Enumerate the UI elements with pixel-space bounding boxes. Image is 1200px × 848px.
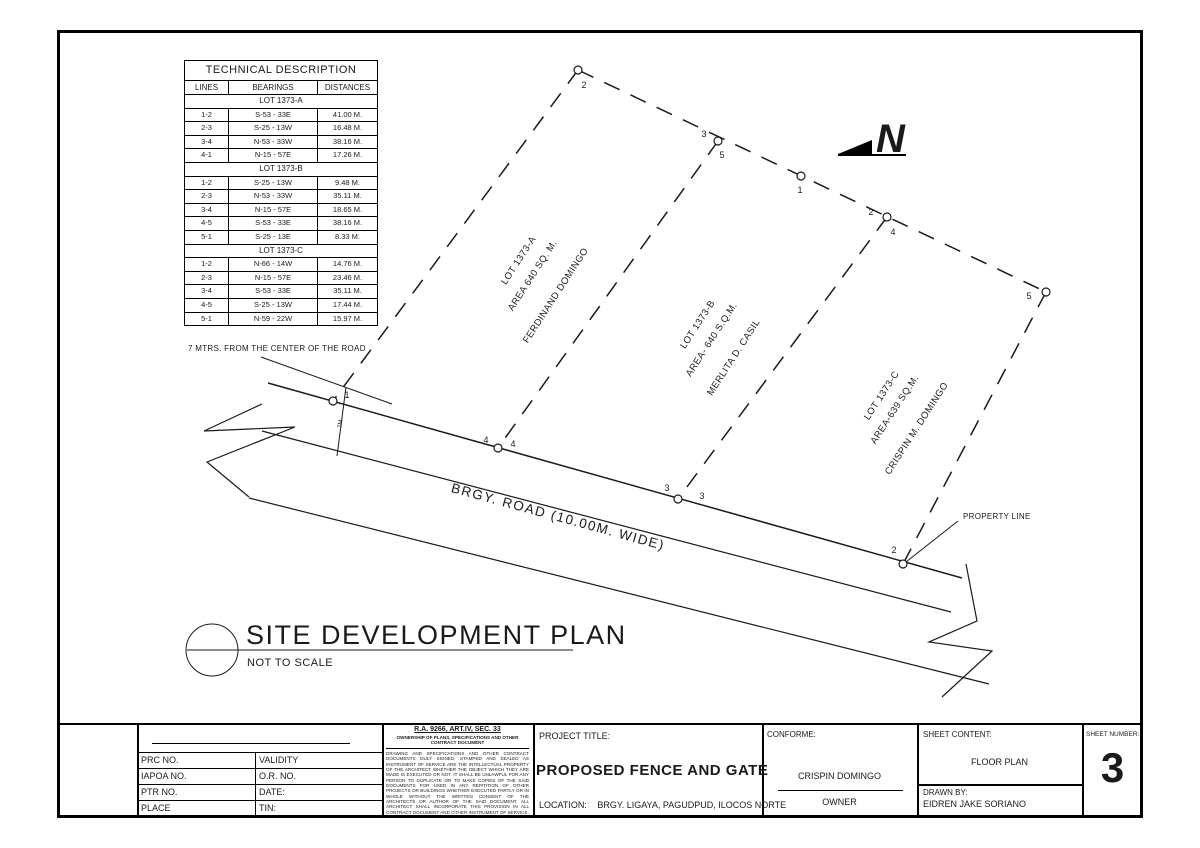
table-cell: 1-2	[185, 108, 229, 122]
sheet-number: 3	[1082, 744, 1143, 792]
point-label: 4	[483, 435, 488, 445]
road-break-left	[204, 404, 295, 497]
survey-point-labels: 2 3 5 1 2 4 5 1 4 4 3 3 2	[344, 80, 1031, 555]
table-cell: N-59 - 22W	[229, 312, 318, 326]
table-cell: 41.00 M.	[318, 108, 378, 122]
table-cell: 8.33 M.	[318, 230, 378, 244]
registration-row-line	[137, 784, 382, 785]
table-cell: S-53 - 33E	[229, 217, 318, 231]
table-cell: 4-5	[185, 217, 229, 231]
setback-note: 7 MTRS. FROM THE CENTER OF THE ROAD	[188, 344, 366, 353]
point-label: 2	[891, 545, 896, 555]
table-cell: 5-1	[185, 312, 229, 326]
ptr-no-label: PTR NO.	[141, 787, 178, 797]
architect-signature-line	[152, 743, 350, 744]
lot-boundary-lines	[333, 70, 1046, 564]
point-marker	[797, 172, 805, 180]
law-body: DRAWING AND SPECIFICATIONS AND OTHER CON…	[386, 751, 529, 815]
table-cell: S-25 - 13W	[229, 298, 318, 312]
titleblock-divider	[382, 723, 384, 816]
north-letter: N	[876, 117, 906, 161]
table-row: 3-4N-53 - 33W38.16 M.	[185, 135, 378, 149]
law-notice: R.A. 9266, ART.IV, SEC. 33 OWNERSHIP OF …	[386, 726, 529, 815]
table-row: 3-4N-15 - 57E18.65 M.	[185, 203, 378, 217]
table-cell: 17.26 M.	[318, 149, 378, 163]
iapoa-no-label: IAPOA NO.	[141, 771, 187, 781]
table-row: TECHNICAL DESCRIPTION	[185, 61, 378, 81]
conforme-label: CONFORME:	[767, 730, 816, 739]
table-cell: LINES	[185, 81, 229, 95]
lot-c-owner: CRISPIN M. DOMINGO	[883, 380, 951, 477]
table-cell: S-53 - 33E	[229, 285, 318, 299]
table-cell: 4-5	[185, 298, 229, 312]
plan-sheet: { "sheet": { "north_label": "N", "plan_t…	[0, 0, 1200, 848]
date-label: DATE:	[259, 787, 285, 797]
table-row: LOT 1373-B	[185, 162, 378, 176]
point-marker	[674, 495, 682, 503]
point-marker	[1042, 288, 1050, 296]
lot-labels: LOT 1373-A AREA 640 SQ. M. FERDINAND DOM…	[499, 234, 951, 477]
table-row: 2-3N-15 - 57E23.46 M.	[185, 271, 378, 285]
table-row: 2-3N-53 - 33W35.11 M.	[185, 190, 378, 204]
titleblock-divider	[917, 723, 919, 816]
or-no-label: O.R. NO.	[259, 771, 296, 781]
titleblock-divider	[533, 723, 535, 816]
table-cell: LOT 1373-B	[185, 162, 378, 176]
table-row: 1-2S-53 - 33E41.00 M.	[185, 108, 378, 122]
frontage-property-line	[268, 383, 962, 578]
location-value: BRGY. LIGAYA, PAGUDPUD, ILOCOS NORTE	[597, 800, 786, 810]
location-label: LOCATION:	[539, 800, 587, 810]
validity-label: VALIDITY	[259, 755, 298, 765]
table-cell: 5-1	[185, 230, 229, 244]
titleblock-top-line	[57, 723, 1143, 725]
table-cell: 2-3	[185, 122, 229, 136]
table-cell: LOT 1373-C	[185, 244, 378, 258]
point-label: 3	[699, 491, 704, 501]
table-cell: 38.16 M.	[318, 135, 378, 149]
law-heading: R.A. 9266, ART.IV, SEC. 33	[386, 726, 529, 734]
table-row: 4-5S-25 - 13W17.44 M.	[185, 298, 378, 312]
table-cell: 2-3	[185, 271, 229, 285]
law-subheading: OWNERSHIP OF PLANS, SPECIFICATIONS AND O…	[386, 735, 529, 749]
point-marker	[714, 137, 722, 145]
table-cell: N-53 - 33W	[229, 190, 318, 204]
table-row: 4-1N-15 - 57E17.26 M.	[185, 149, 378, 163]
point-label: 4	[510, 439, 515, 449]
drawing-title: SITE DEVELOPMENT PLAN	[246, 620, 627, 650]
table-cell: 3-4	[185, 203, 229, 217]
point-marker	[329, 397, 337, 405]
table-cell: S-25 - 13W	[229, 122, 318, 136]
point-marker	[883, 213, 891, 221]
table-cell: S-25 - 13E	[229, 230, 318, 244]
divider-lot-a-b	[498, 141, 718, 448]
table-cell: 23.46 M.	[318, 271, 378, 285]
table-cell: 15.97 M.	[318, 312, 378, 326]
table-row: LINESBEARINGSDISTANCES	[185, 81, 378, 95]
lot-a-owner: FERDINAND DOMINGO	[521, 246, 591, 345]
table-cell: LOT 1373-A	[185, 95, 378, 109]
point-label: 2	[581, 80, 586, 90]
north-arrow-icon: N	[838, 117, 906, 161]
project-title: PROPOSED FENCE AND GATE	[536, 762, 760, 779]
sheet-number-label: SHEET NUMBER:	[1086, 731, 1139, 738]
point-label: 3	[701, 129, 706, 139]
north-arrow-wedge	[838, 140, 872, 154]
point-label: 5	[1026, 291, 1031, 301]
registration-row-line	[137, 800, 382, 801]
drawn-by-name: EIDREN JAKE SORIANO	[923, 799, 1026, 809]
conforme-signature-line	[778, 790, 903, 791]
boundary-right	[903, 292, 1046, 564]
table-cell: N-53 - 33W	[229, 135, 318, 149]
table-cell: N-15 - 57E	[229, 271, 318, 285]
registration-row-line	[137, 752, 382, 753]
sheet-content-label: SHEET CONTENT:	[923, 730, 992, 739]
table-cell: 17.44 M.	[318, 298, 378, 312]
table-cell: 35.11 M.	[318, 285, 378, 299]
point-label: 5	[719, 150, 724, 160]
table-cell: N-15 - 57E	[229, 203, 318, 217]
setback-dim-label: 7M	[337, 419, 344, 428]
divider-lot-b-c	[678, 217, 887, 499]
conforme-role: OWNER	[762, 797, 917, 807]
table-cell: S-53 - 33E	[229, 108, 318, 122]
place-label: PLACE	[141, 803, 171, 813]
table-row: LOT 1373-C	[185, 244, 378, 258]
registration-row-line	[137, 768, 382, 769]
table-cell: TECHNICAL DESCRIPTION	[185, 61, 378, 81]
point-label: 3	[664, 483, 669, 493]
point-marker	[574, 66, 582, 74]
drawn-by-label: DRAWN BY:	[923, 788, 968, 797]
survey-point-markers	[329, 66, 1050, 568]
point-marker	[494, 444, 502, 452]
sheet-content-divider	[917, 784, 1083, 786]
table-row: 3-4S-53 - 33E35.11 M.	[185, 285, 378, 299]
table-cell: BEARINGS	[229, 81, 318, 95]
table-cell: DISTANCES	[318, 81, 378, 95]
table-cell: 16.48 M.	[318, 122, 378, 136]
project-location: LOCATION: BRGY. LIGAYA, PAGUDPUD, ILOCOS…	[539, 800, 786, 810]
table-cell: 4-1	[185, 149, 229, 163]
point-label: 1	[344, 390, 349, 400]
table-cell: N-66 - 14W	[229, 258, 318, 272]
table-cell: 9.48 M.	[318, 176, 378, 190]
conforme-name: CRISPIN DOMINGO	[762, 771, 917, 781]
table-cell: 2-3	[185, 190, 229, 204]
table-row: 2-3S-25 - 13W16.48 M.	[185, 122, 378, 136]
table-cell: 14.76 M.	[318, 258, 378, 272]
site-plan-drawing: 2 3 5 1 2 4 5 1 4 4 3 3 2 LOT 1373-A ARE…	[0, 0, 1200, 848]
registration-col-line	[255, 752, 256, 816]
titleblock-divider	[137, 723, 139, 816]
table-cell: S-25 - 13W	[229, 176, 318, 190]
drawing-scale-note: NOT TO SCALE	[247, 657, 333, 669]
table-cell: N-15 - 57E	[229, 149, 318, 163]
table-cell: 38.16 M.	[318, 217, 378, 231]
table-row: 5-1N-59 - 22W15.97 M.	[185, 312, 378, 326]
point-marker	[899, 560, 907, 568]
table-cell: 3-4	[185, 285, 229, 299]
table-row: 1-2S-25 - 13W9.48 M.	[185, 176, 378, 190]
point-label: 4	[890, 227, 895, 237]
prc-no-label: PRC NO.	[141, 755, 179, 765]
drawing-title-group: SITE DEVELOPMENT PLAN NOT TO SCALE	[186, 620, 627, 676]
table-row: 4-5S-53 - 33E38.16 M.	[185, 217, 378, 231]
setback-line	[261, 357, 392, 404]
tin-label: TIN:	[259, 803, 276, 813]
boundary-top	[578, 70, 1046, 292]
technical-description-table: TECHNICAL DESCRIPTIONLINESBEARINGSDISTAN…	[184, 60, 378, 326]
table-row: 5-1S-25 - 13E8.33 M.	[185, 230, 378, 244]
table-row: LOT 1373-A	[185, 95, 378, 109]
point-label: 2	[868, 207, 873, 217]
sheet-content-value: FLOOR PLAN	[917, 757, 1082, 767]
property-line-leader	[906, 521, 958, 562]
table-cell: 3-4	[185, 135, 229, 149]
table-cell: 1-2	[185, 176, 229, 190]
project-title-label: PROJECT TITLE:	[539, 731, 610, 741]
property-line-label: PROPERTY LINE	[963, 512, 1031, 521]
table-cell: 18.65 M.	[318, 203, 378, 217]
table-row: 1-2N-66 - 14W14.76 M.	[185, 258, 378, 272]
table-cell: 35.11 M.	[318, 190, 378, 204]
table-cell: 1-2	[185, 258, 229, 272]
point-label: 1	[797, 185, 802, 195]
road-label: BRGY. ROAD (10.00M. WIDE)	[450, 480, 667, 553]
